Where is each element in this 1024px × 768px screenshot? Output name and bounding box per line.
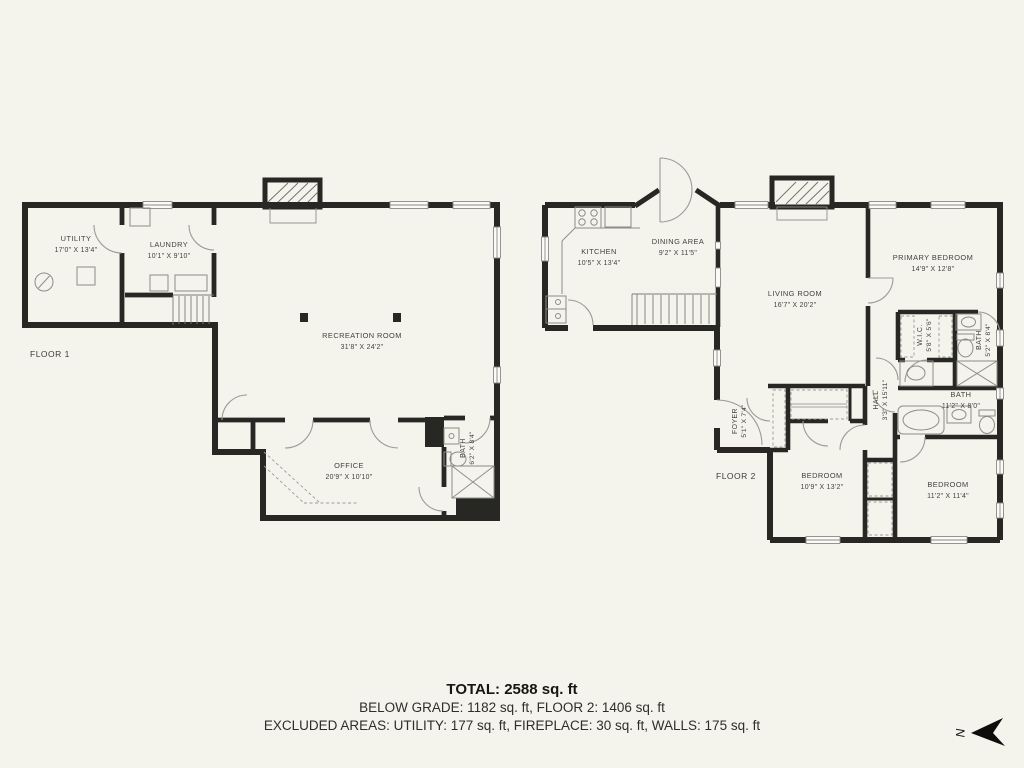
floor1-plan (25, 180, 501, 518)
floor2-stairs (632, 294, 717, 325)
excluded-areas-text: EXCLUDED AREAS: UTILITY: 177 sq. ft, FIR… (0, 717, 1024, 735)
floor-breakdown-text: BELOW GRADE: 1182 sq. ft, FLOOR 2: 1406 … (0, 699, 1024, 717)
floor2-bay-walls (635, 190, 720, 206)
room-label-laundry: LAUNDRY 10'1" X 9'10" (148, 240, 191, 260)
support-post-icon (300, 313, 308, 322)
support-post-icon (393, 313, 401, 322)
compass: N (948, 708, 1014, 756)
room-label-kitchen: KITCHEN 10'5" X 13'4" (578, 247, 621, 267)
room-label-dining: DINING AREA 9'2" X 11'5" (652, 237, 705, 257)
floor1-chimney-block (425, 417, 444, 447)
floor1-windows (143, 202, 501, 384)
room-label-primary-bath: BATH 5'2" X 8'4" (976, 323, 992, 356)
floor1-door-arcs (94, 225, 490, 511)
room-label-foyer: FOYER 5'1" X 7'4" (732, 404, 748, 437)
room-label-living: LIVING ROOM 16'7" X 20'2" (768, 289, 822, 309)
room-label-bath1: BATH 6'2" X 8'4" (460, 431, 476, 464)
room-label-bedroom-right: BEDROOM 11'2" X 11'4" (927, 480, 969, 500)
room-label-office: OFFICE 20'9" X 10'10" (326, 461, 373, 481)
total-area-text: TOTAL: 2588 sq. ft (0, 681, 1024, 699)
floor2-fireplace-icon (772, 178, 832, 220)
floor1-stairs (173, 295, 214, 325)
floor1-fireplace-icon (265, 180, 320, 223)
room-label-wic: W.I.C. 5'8" X 5'6" (917, 318, 933, 351)
floor2-tag: FLOOR 2 (716, 471, 756, 481)
closet-sliding-doors (791, 404, 847, 407)
room-label-utility: UTILITY 17'0" X 13'4" (55, 234, 98, 254)
room-label-bedroom-left: BEDROOM 10'9" X 13'2" (801, 471, 844, 491)
room-label-bath2: BATH 11'2" X 8'0" (942, 390, 980, 410)
room-label-primary-bedroom: PRIMARY BEDROOM 14'9" X 12'8" (893, 253, 973, 273)
north-arrow-icon (948, 708, 1014, 756)
floor1-tag: FLOOR 1 (30, 349, 70, 359)
area-summary: TOTAL: 2588 sq. ft BELOW GRADE: 1182 sq.… (0, 681, 1024, 736)
floorplan-drawing (0, 0, 1024, 768)
floor1-corner-block (456, 498, 497, 518)
floorplan-page: UTILITY 17'0" X 13'4" LAUNDRY 10'1" X 9'… (0, 0, 1024, 768)
room-label-hall: HALL 3'3" X 15'11" (873, 380, 889, 421)
room-label-recreation: RECREATION ROOM 31'8" X 24'2" (322, 331, 402, 351)
